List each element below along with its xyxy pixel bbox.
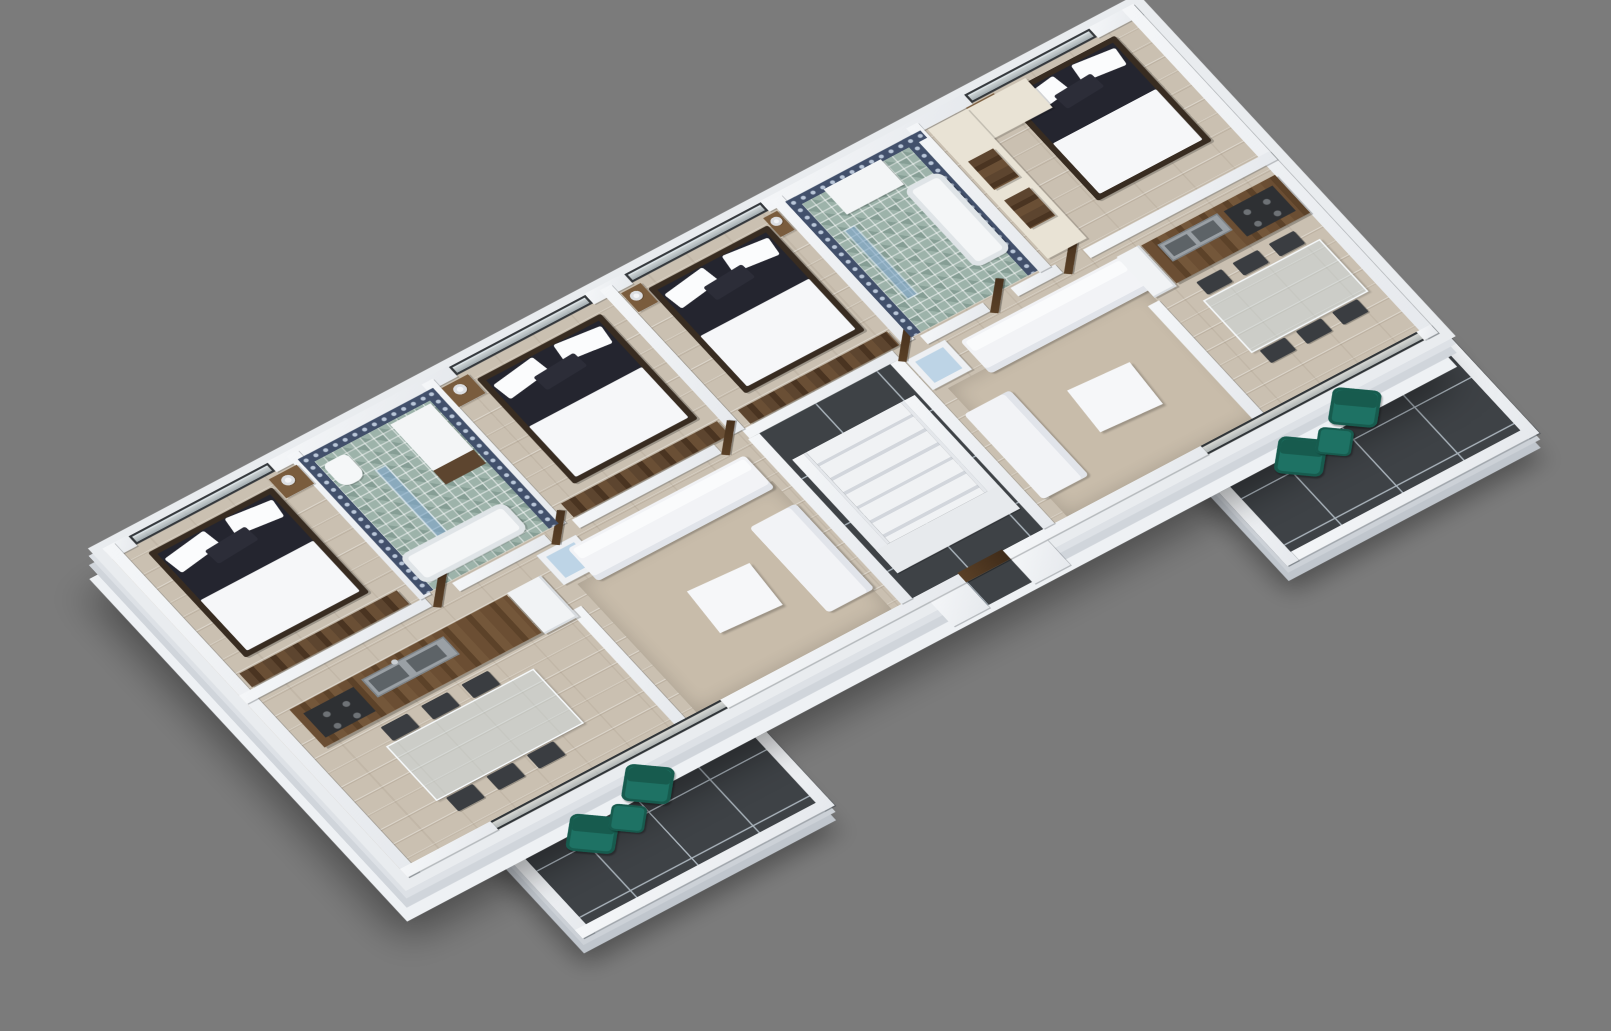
- floor-plan: [72, 0, 1611, 1011]
- teal-armchair: [1327, 387, 1382, 428]
- render-background: [0, 0, 1611, 1031]
- teal-ottoman: [1315, 427, 1355, 457]
- teal-ottoman: [608, 803, 648, 833]
- teal-armchair: [621, 763, 676, 804]
